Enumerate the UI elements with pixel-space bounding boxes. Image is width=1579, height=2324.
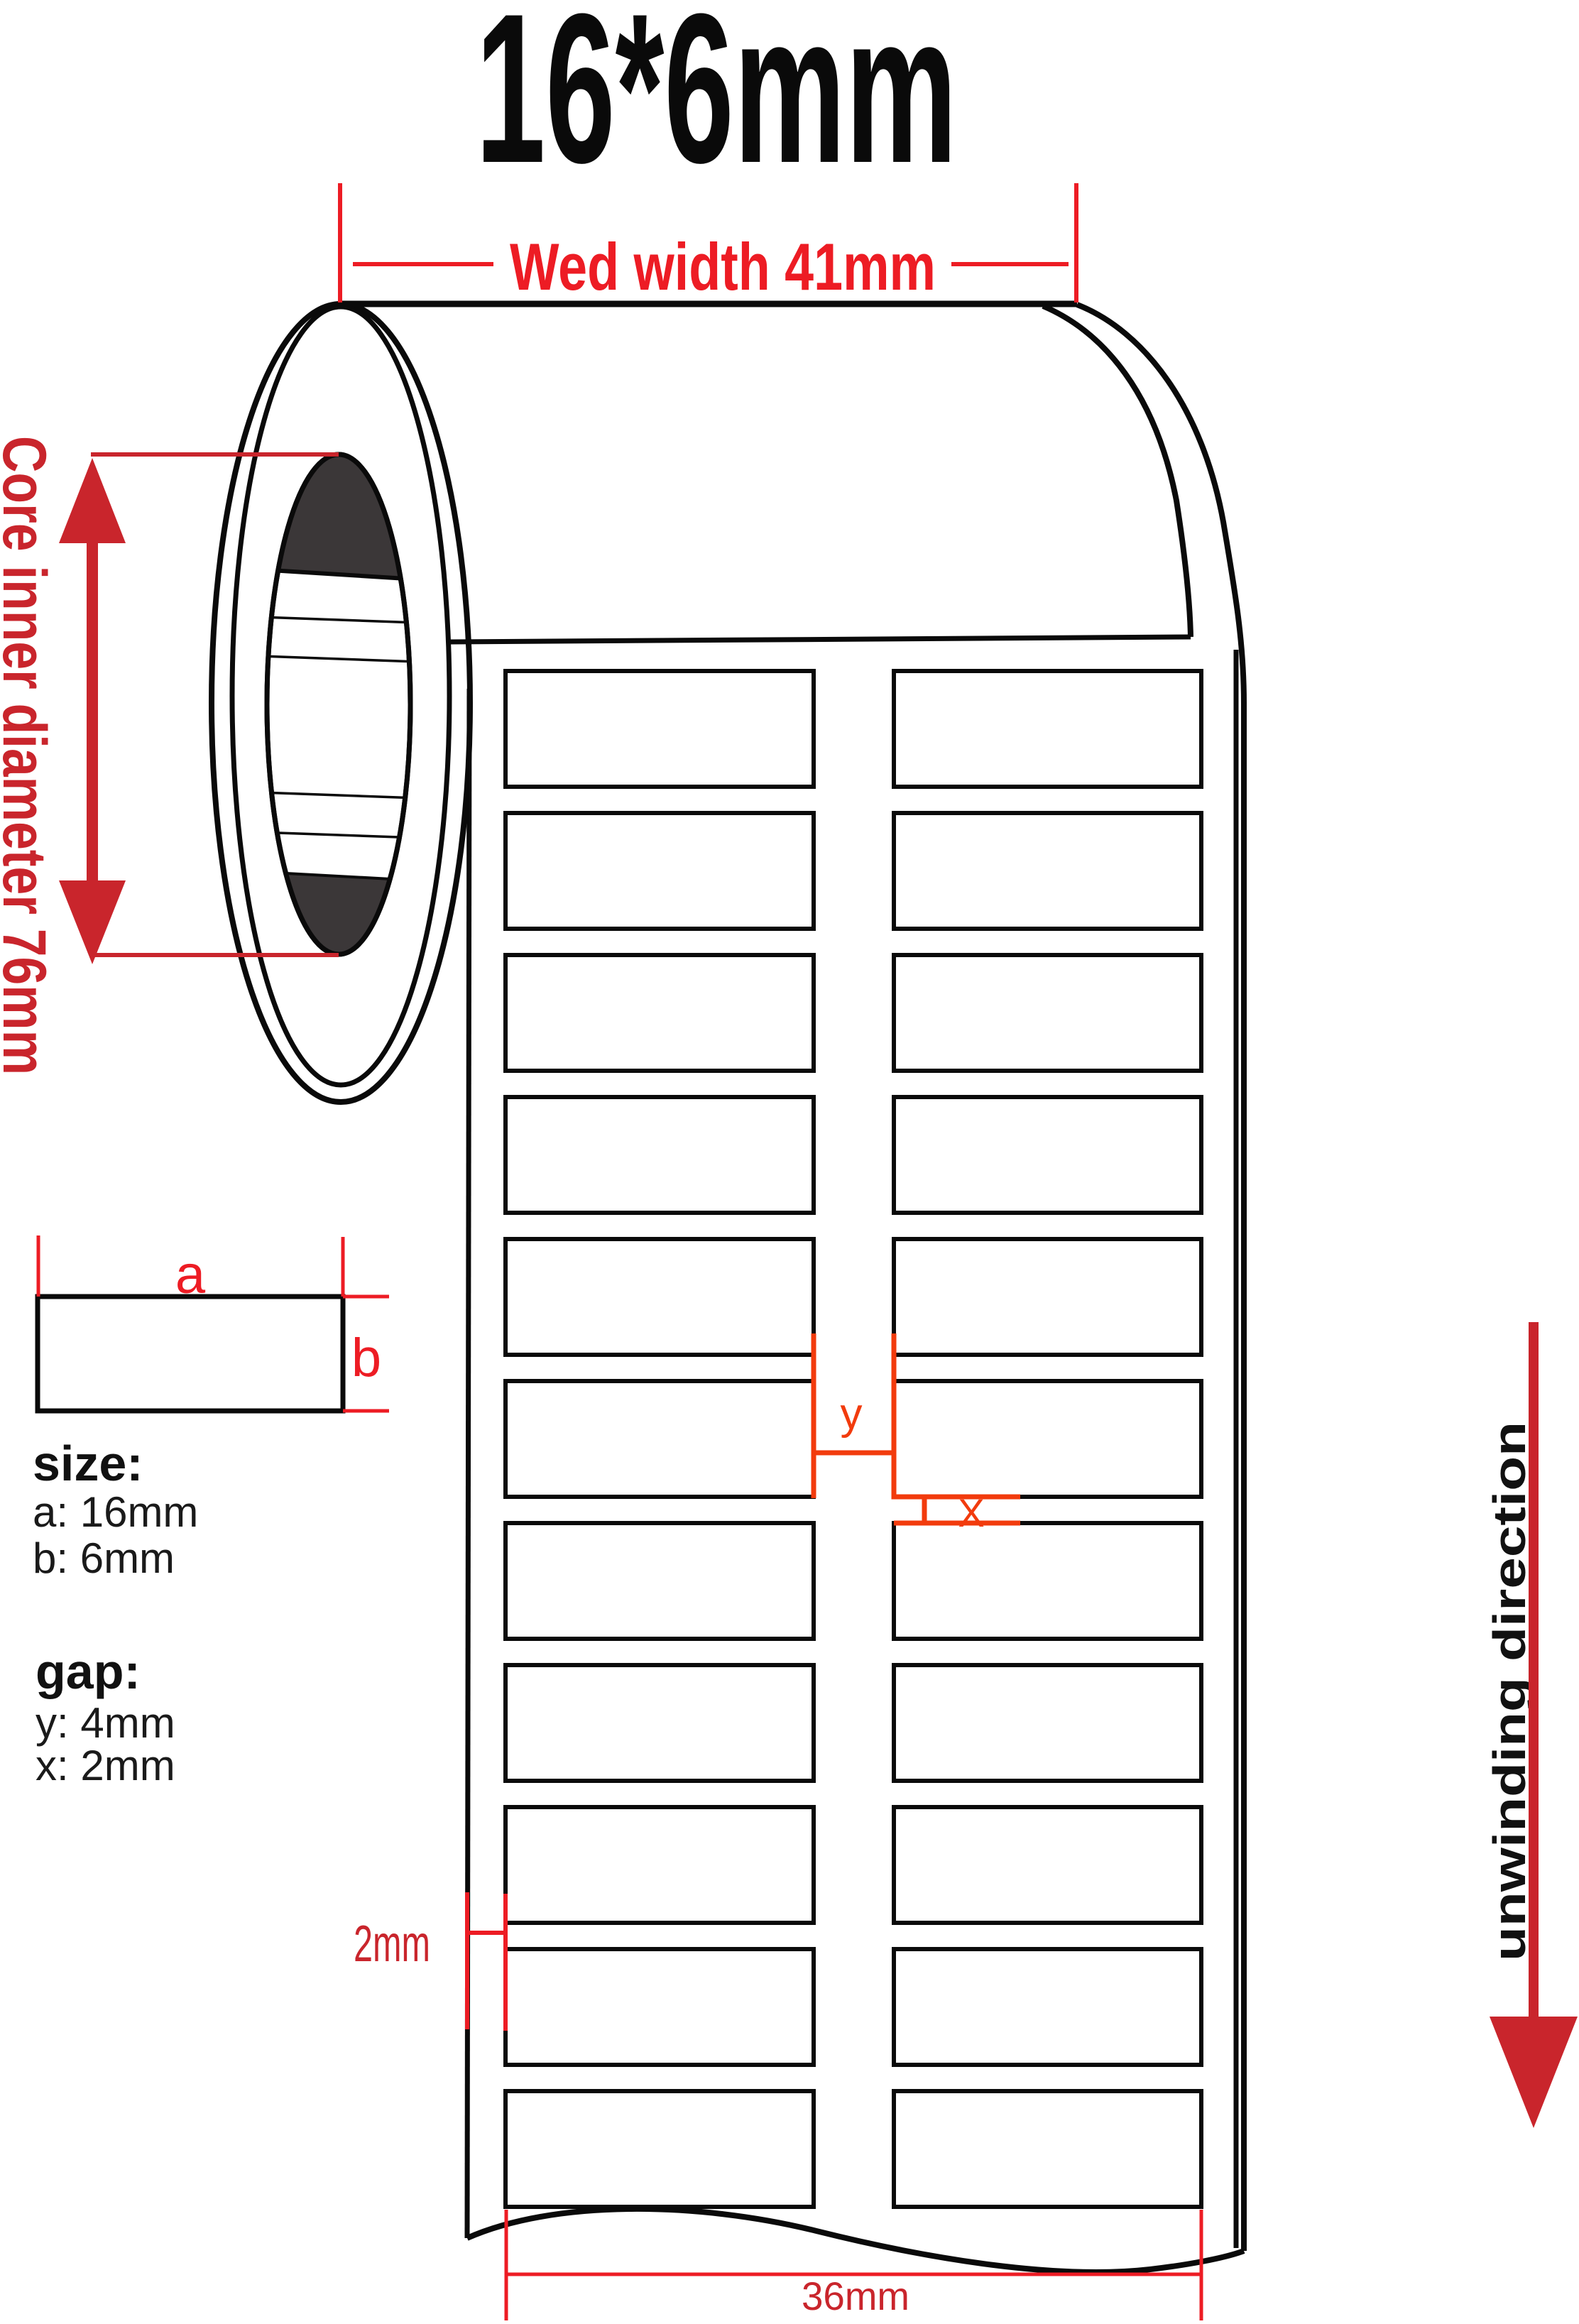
label-roll-diagram: 16*6mm Wed width 41mm Core inner diamete… xyxy=(0,0,1579,2324)
label-cell xyxy=(894,955,1201,1071)
edge-margin-label: 2mm xyxy=(354,1916,430,1973)
label-cell xyxy=(506,1807,814,1923)
label-cell xyxy=(894,1381,1201,1497)
unwinding-direction-label: unwinding direction xyxy=(1484,1422,1535,1961)
core-diameter-label: Core inner diameter 76mm xyxy=(0,436,58,1075)
page-title: 16*6mm xyxy=(476,0,957,207)
label-cell xyxy=(506,1665,814,1781)
web-strip-torn-bottom xyxy=(467,2209,1244,2272)
label-cell xyxy=(506,671,814,787)
gap-y-value: y: 4mm xyxy=(35,1699,175,1747)
bottom-width-dimension: 36mm xyxy=(506,2210,1201,2320)
core-tube-line xyxy=(260,617,417,623)
label-cell xyxy=(894,1665,1201,1781)
bottom-width-label: 36mm xyxy=(802,2274,909,2318)
edge-margin-dimension: 2mm xyxy=(354,1892,506,2031)
gap-x-value: x: 2mm xyxy=(35,1742,175,1789)
label-cell xyxy=(506,1239,814,1355)
label-cell xyxy=(894,671,1201,787)
sheet-bottom-edge xyxy=(448,637,1191,642)
label-cell xyxy=(506,813,814,929)
size-b-value: b: 6mm xyxy=(33,1534,175,1582)
gap-x-marker: X xyxy=(958,1490,984,1535)
core-tube-line xyxy=(260,792,417,798)
gap-y-marker: y xyxy=(841,1390,863,1439)
unwinding-direction: unwinding direction xyxy=(1484,1322,1578,2128)
label-cell xyxy=(894,1949,1201,2065)
core-diameter-double-arrow-icon xyxy=(59,458,126,964)
label-cell xyxy=(894,1097,1201,1213)
sample-a-label: a xyxy=(175,1245,206,1305)
label-cell xyxy=(506,1097,814,1213)
roll-outer-ellipse xyxy=(212,304,470,1102)
core-bottom-shadow xyxy=(260,872,417,961)
legend-text-block: size: a: 16mm b: 6mm gap: y: 4mm x: 2mm xyxy=(33,1436,198,1789)
label-grid xyxy=(506,671,1201,2207)
label-cell xyxy=(894,1523,1201,1639)
label-cell xyxy=(894,1239,1201,1355)
label-cell xyxy=(506,2091,814,2207)
label-cell xyxy=(506,1523,814,1639)
size-a-value: a: 16mm xyxy=(33,1488,198,1536)
label-cell xyxy=(506,1381,814,1497)
core-top-shadow xyxy=(260,447,417,579)
roll-drawing xyxy=(212,304,1244,2272)
web-width-label: Wed width 41mm xyxy=(510,229,936,304)
label-cell xyxy=(894,813,1201,929)
sample-label-figure: a b xyxy=(38,1235,389,1411)
label-cell xyxy=(894,1807,1201,1923)
label-cell xyxy=(894,2091,1201,2207)
label-cell xyxy=(506,1949,814,2065)
sample-b-label: b xyxy=(351,1328,381,1388)
sample-label-rect xyxy=(38,1297,343,1411)
gap-heading: gap: xyxy=(35,1644,141,1699)
sheet-right-inner-arc xyxy=(1043,306,1191,637)
core-hole xyxy=(260,447,417,961)
core-tube-line xyxy=(260,832,417,838)
core-tube-line xyxy=(260,656,417,662)
size-heading: size: xyxy=(33,1436,143,1491)
label-cell xyxy=(506,955,814,1071)
